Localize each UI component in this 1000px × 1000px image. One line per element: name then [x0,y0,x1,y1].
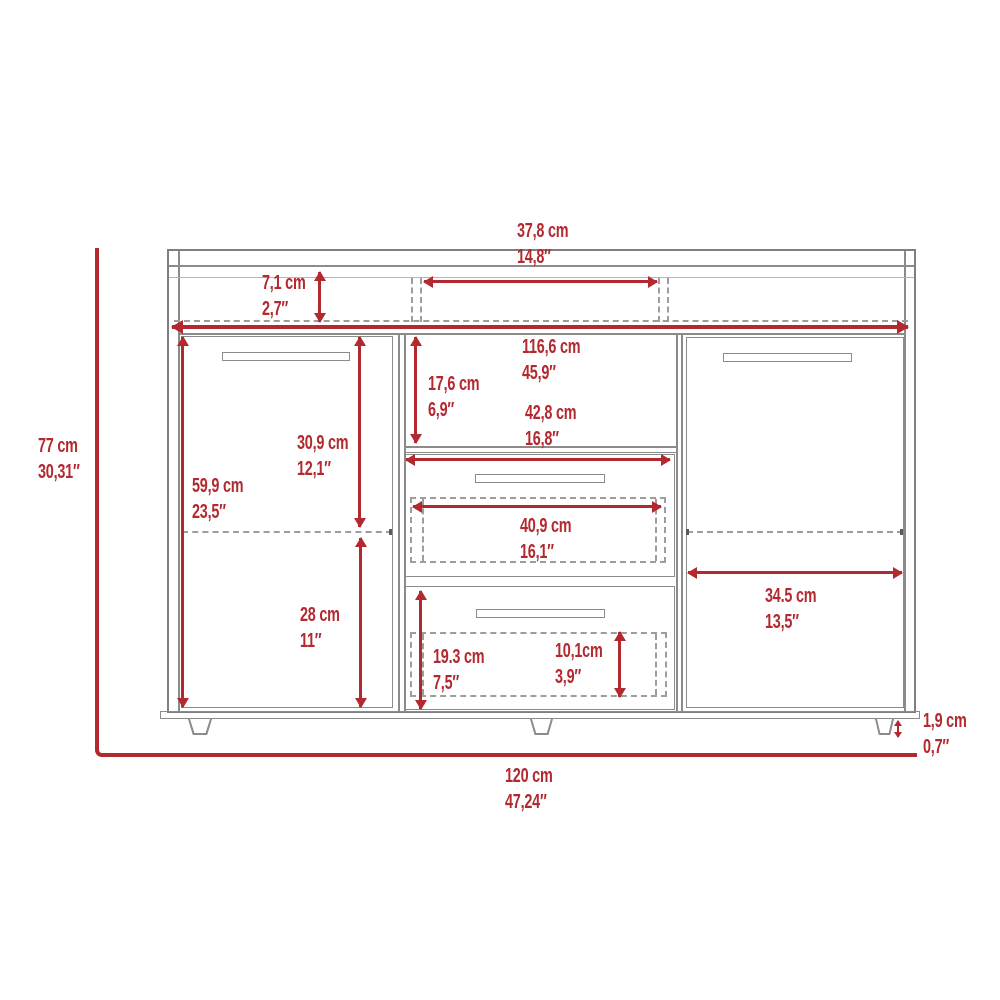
arrow-bottom-drawer-height [419,591,422,709]
dim-overall-height: 77 cm30,31″ [38,433,80,485]
arrow-interior-width [172,325,908,329]
dim-top-opening-width: 37,8 cm14,8″ [517,218,568,270]
arrow-door-lower-height [359,538,362,707]
dim-bottom-drawer-inner-height: 10,1cm3,9″ [555,638,603,690]
dim-top-shelf-height: 7,1 cm2,7″ [262,270,306,322]
arrow-cubby-height [414,337,417,443]
arrow-leg-height [897,721,899,737]
dim-door-upper-height: 30,9 cm12,1″ [297,430,348,482]
dim-drawer-width: 42,8 cm16,8″ [525,400,576,452]
arrow-top-opening-width [424,280,657,283]
dim-door-lower-height: 28 cm11″ [300,602,340,654]
dim-overall-width: 120 cm47,24″ [505,763,553,815]
dim-leg-height: 1,9 cm0,7″ [923,708,967,760]
arrow-drawer-width [406,458,670,461]
arrow-door-upper-height [358,337,361,527]
dim-door-height: 59,9 cm23,5″ [192,473,243,525]
dim-cubby-height: 17,6 cm6,9″ [428,371,479,423]
arrow-door-height [181,337,184,707]
arrow-top-shelf-height [318,272,321,322]
dim-drawer-inner-width: 40,9 cm16,1″ [520,513,571,565]
dim-bottom-drawer-height: 19.3 cm7,5″ [433,644,484,696]
dim-interior-width: 116,6 cm45,9″ [522,334,580,386]
arrow-drawer-inner-width [413,505,661,508]
dim-right-door-width: 34.5 cm13,5″ [765,583,816,635]
dimension-diagram: 37,8 cm14,8″ 7,1 cm2,7″ 116,6 cm45,9″ 17… [0,0,1000,1000]
arrow-bottom-drawer-inner-height [618,632,621,697]
arrow-right-door-width [688,571,902,574]
